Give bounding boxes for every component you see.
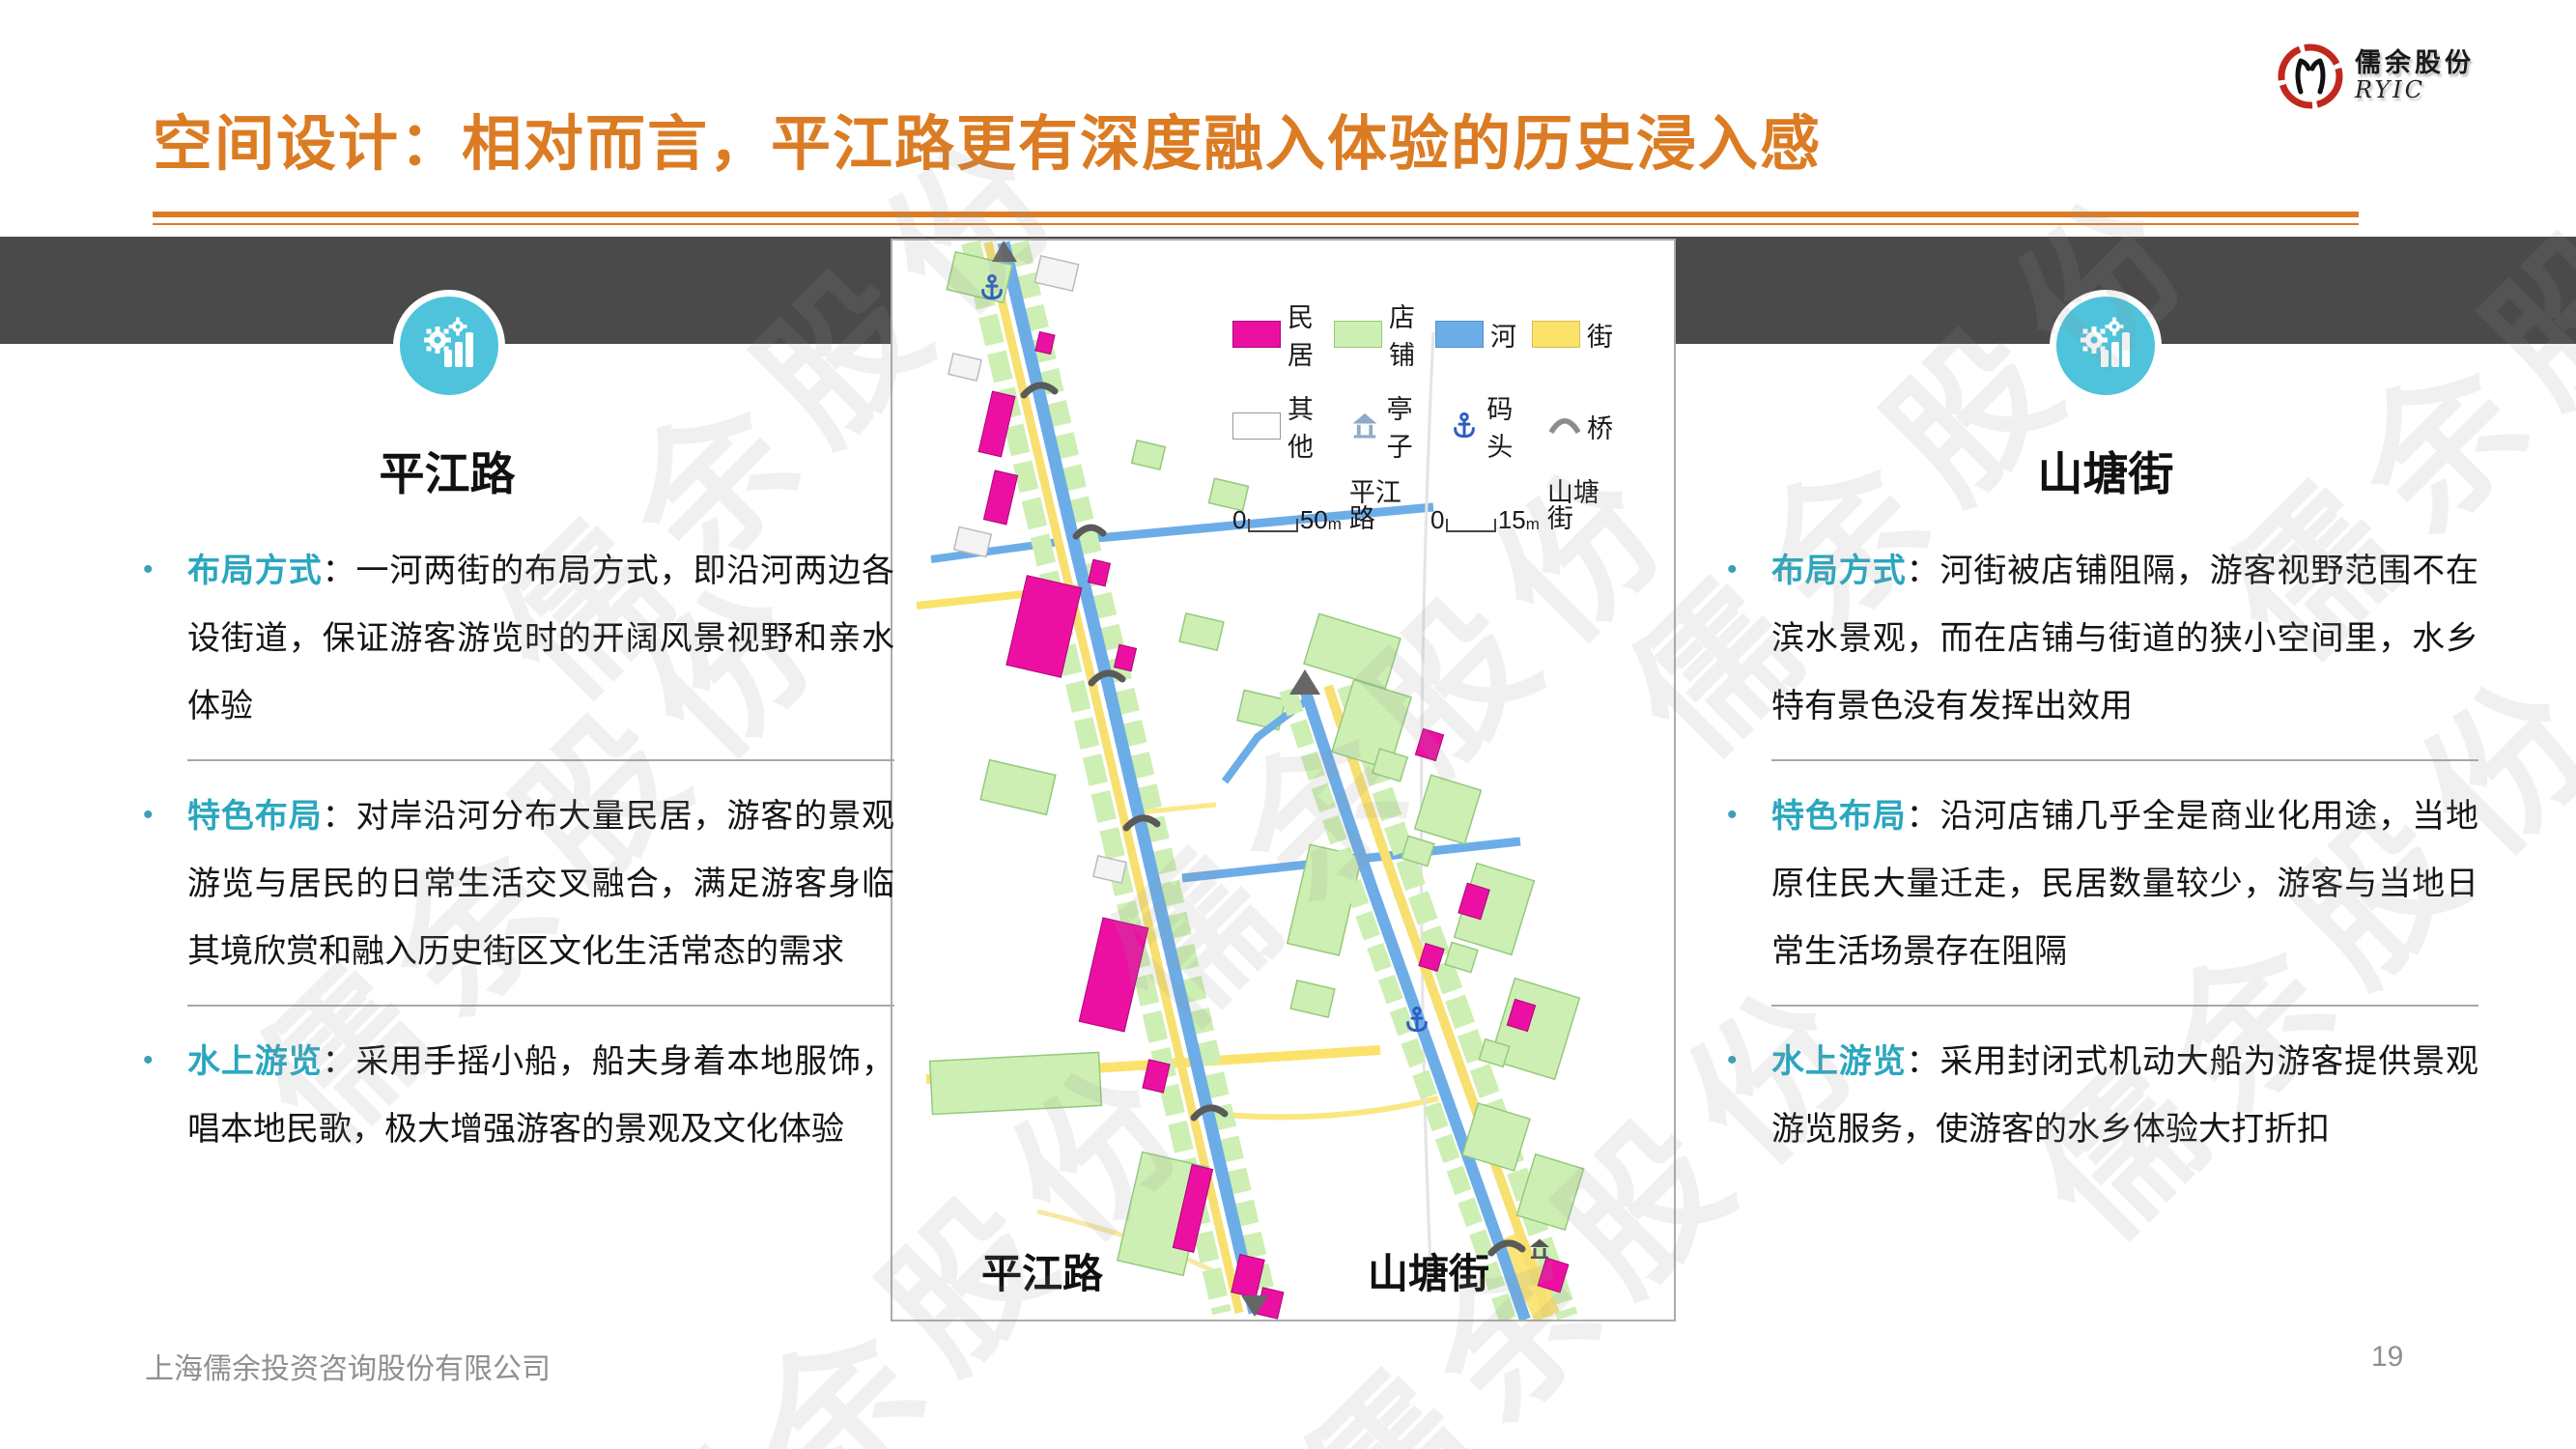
bridge-icon (1549, 412, 1580, 440)
scale-bar-shantang: 0 15 m 山塘街 (1430, 480, 1603, 532)
page-number: 19 (2371, 1341, 2403, 1374)
list-item: • 水上游览：采用手摇小船，船夫身着本地服饰，唱本地民歌，极大增强游客的景观及文… (143, 1028, 894, 1163)
bullet-term: 布局方式 (1771, 553, 1907, 589)
scale-start: 0 (1430, 507, 1444, 532)
bullet-dot: • (143, 537, 187, 740)
scale-unit: m (1328, 516, 1342, 532)
legend-label: 亭子 (1387, 388, 1434, 464)
scale-line (1446, 519, 1495, 532)
bullet-term: 特色布局 (1771, 798, 1907, 835)
scale-start: 0 (1232, 507, 1246, 532)
scale-label: 山塘街 (1547, 480, 1603, 532)
legend-row-scales: 0 50 m 平江路 0 15 m 山塘街 (1232, 480, 1628, 532)
list-item: • 布局方式：河街被店铺阻隔，游客视野范围不在滨水景观，而在店铺与街道的狭小空间… (1727, 537, 2478, 740)
scale-label: 平江路 (1349, 480, 1405, 532)
scale-unit: m (1526, 516, 1540, 532)
divider (1771, 1005, 2478, 1007)
legend-swatch-other (1232, 412, 1281, 440)
logo-ring-icon (2276, 42, 2345, 111)
legend-label: 桥 (1587, 408, 1613, 445)
legend-swatch-street (1532, 321, 1580, 348)
legend-label: 河 (1490, 316, 1516, 354)
company-logo: 儒余股份 RYIC (2276, 33, 2565, 120)
scale-end: 50 (1300, 507, 1328, 532)
legend-label: 码头 (1486, 388, 1534, 464)
bullet-term: 水上游览 (1771, 1043, 1907, 1080)
divider (187, 1005, 894, 1007)
map-label-shantang: 山塘街 (1368, 1241, 1489, 1300)
legend-label: 店铺 (1389, 297, 1420, 372)
legend-swatch-shop (1334, 321, 1382, 348)
list-item: • 特色布局：沿河店铺几乎全是商业化用途，当地原住民大量迁走，民居数量较少，游客… (1727, 782, 2478, 985)
bullet-dot: • (143, 1028, 187, 1163)
legend-label: 其他 (1288, 388, 1334, 464)
legend-row-symbols: 其他 亭子 码头 桥 (1232, 388, 1628, 464)
left-column-header: 平江路 (302, 437, 592, 503)
shantang-badge (2050, 290, 2162, 402)
map-legend: 民居 店铺 河 街 其他 亭子 码头 桥 0 50 m 平江路 (1232, 297, 1628, 549)
bullet-dot: • (1727, 782, 1771, 985)
scale-line (1248, 519, 1297, 532)
list-item: • 特色布局：对岸沿河分布大量民居，游客的景观游览与居民的日常生活交叉融合，满足… (143, 782, 894, 985)
legend-swatch-residence (1232, 321, 1281, 348)
scale-end: 15 (1498, 507, 1526, 532)
map-label-pingjiang: 平江路 (981, 1241, 1103, 1300)
divider (1771, 759, 2478, 761)
right-column-header: 山塘街 (1961, 437, 2250, 503)
bullet-dot: • (1727, 1028, 1771, 1163)
footer-company: 上海儒余投资咨询股份有限公司 (145, 1345, 551, 1387)
bullet-term: 布局方式 (187, 553, 323, 589)
page-title: 空间设计：相对而言，平江路更有深度融入体验的历史浸入感 (153, 95, 2374, 182)
legend-row-colors: 民居 店铺 河 街 (1232, 297, 1628, 372)
gear-chart-icon (418, 315, 480, 377)
list-item: • 布局方式：一河两街的布局方式，即沿河两边各设街道，保证游客游览时的开阔风景视… (143, 537, 894, 740)
left-column: • 布局方式：一河两街的布局方式，即沿河两边各设街道，保证游客游览时的开阔风景视… (143, 537, 894, 1163)
scale-bar-pingjiang: 0 50 m 平江路 (1232, 480, 1405, 532)
bullet-term: 特色布局 (187, 798, 323, 835)
logo-company-name: 儒余股份 (2355, 50, 2475, 77)
legend-label: 街 (1587, 316, 1613, 354)
list-item: • 水上游览：采用封闭式机动大船为游客提供景观游览服务，使游客的水乡体验大打折扣 (1727, 1028, 2478, 1163)
bullet-dot: • (1727, 537, 1771, 740)
street-map-figure: 民居 店铺 河 街 其他 亭子 码头 桥 0 50 m 平江路 (891, 239, 1676, 1321)
gear-chart-icon (2075, 315, 2137, 377)
title-underline-thin (153, 223, 2359, 225)
slide: 儒余股份 儒余股份 儒余股份 儒余股份 儒余股份 儒余股份 儒余股份 儒余股份 … (0, 0, 2576, 1449)
pingjiang-badge (393, 290, 505, 402)
divider (187, 759, 894, 761)
pavilion-icon (1349, 412, 1380, 440)
title-underline-thick (153, 212, 2359, 217)
right-column: • 布局方式：河街被店铺阻隔，游客视野范围不在滨水景观，而在店铺与街道的狭小空间… (1727, 537, 2478, 1163)
bullet-dot: • (143, 782, 187, 985)
bullet-term: 水上游览 (187, 1043, 323, 1080)
logo-abbr: RYIC (2355, 78, 2475, 102)
legend-label: 民居 (1288, 297, 1318, 372)
legend-swatch-river (1435, 321, 1484, 348)
anchor-icon (1449, 412, 1480, 440)
